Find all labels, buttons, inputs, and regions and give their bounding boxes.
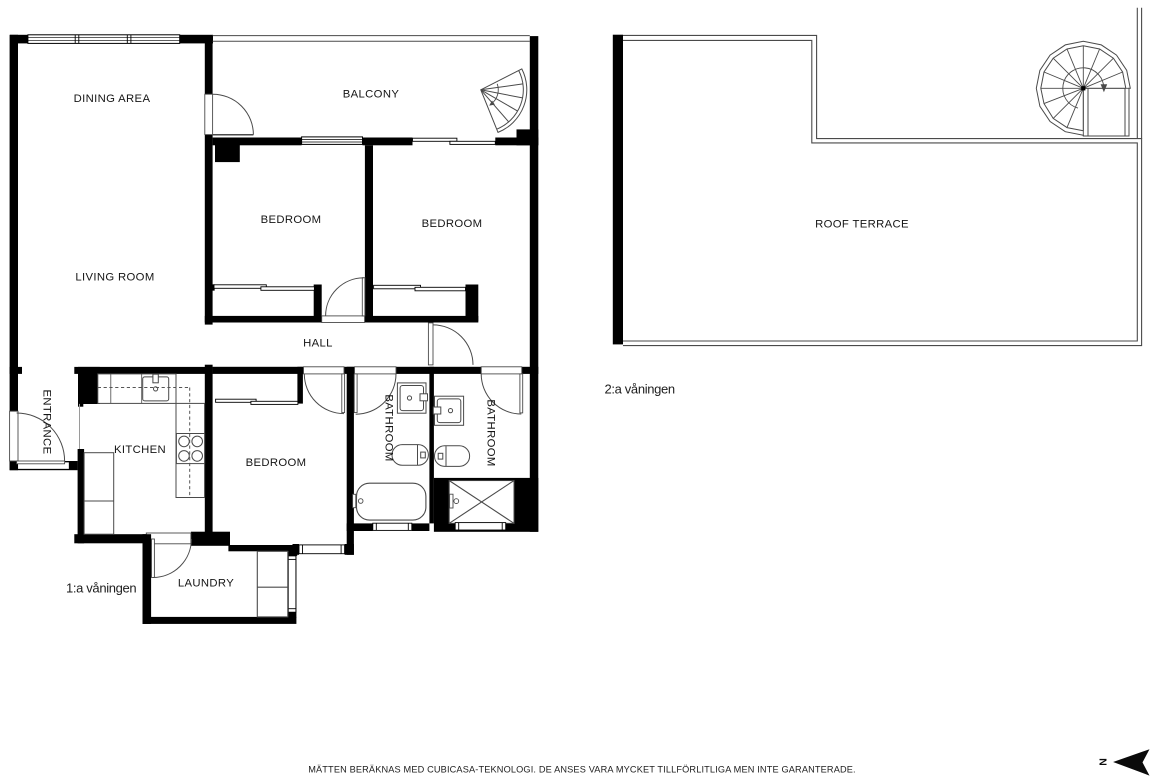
- svg-text:BEDROOM: BEDROOM: [261, 214, 322, 226]
- svg-text:BEDROOM: BEDROOM: [422, 218, 483, 230]
- svg-text:KITCHEN: KITCHEN: [114, 444, 166, 456]
- svg-text:ENTRANCE: ENTRANCE: [41, 390, 53, 455]
- svg-text:LAUNDRY: LAUNDRY: [178, 578, 234, 590]
- svg-text:BALCONY: BALCONY: [343, 89, 400, 101]
- svg-text:BATHROOM: BATHROOM: [485, 399, 497, 466]
- svg-text:2:a våningen: 2:a våningen: [605, 382, 675, 397]
- svg-text:MÄTTEN BERÄKNAS MED CUBICASA-T: MÄTTEN BERÄKNAS MED CUBICASA-TEKNOLOGI. …: [308, 765, 856, 775]
- svg-text:BATHROOM: BATHROOM: [383, 394, 395, 461]
- svg-text:DINING AREA: DINING AREA: [74, 93, 151, 105]
- svg-text:BEDROOM: BEDROOM: [246, 457, 307, 469]
- svg-text:LIVING ROOM: LIVING ROOM: [75, 272, 154, 284]
- svg-text:1:a våningen: 1:a våningen: [66, 581, 136, 596]
- svg-text:ROOF TERRACE: ROOF TERRACE: [815, 219, 909, 231]
- svg-text:HALL: HALL: [303, 337, 333, 349]
- svg-text:N: N: [1098, 758, 1110, 766]
